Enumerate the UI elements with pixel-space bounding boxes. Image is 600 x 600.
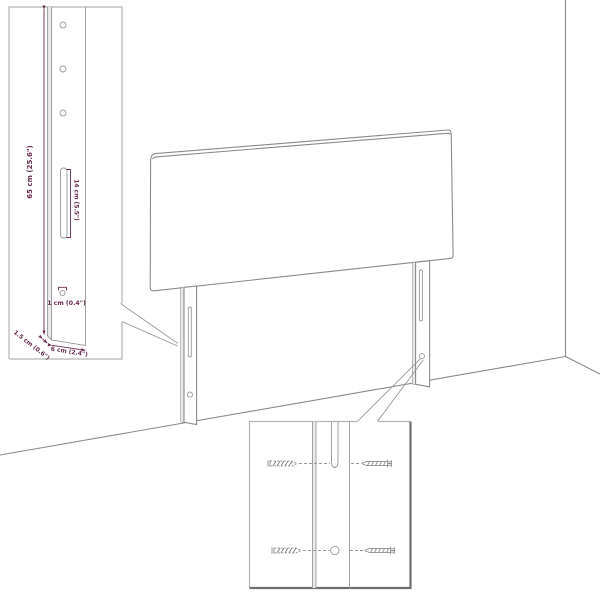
headboard-right-leg: [413, 261, 430, 387]
product-diagram: 65 cm (25.6") 14 cm (5.5") 1 cm (0.4") 1…: [0, 0, 600, 600]
inset-hole-3: [60, 110, 66, 116]
dim-thickness-line: [43, 339, 48, 343]
dim-hole-label: 1 cm (0.4"): [47, 300, 86, 307]
dim-slot-label: 14 cm (5.5"): [73, 179, 80, 221]
callout-leader-left: [121, 304, 179, 347]
headboard-left-leg: [181, 286, 197, 425]
screw-inset: [250, 422, 411, 589]
dim-thickness-label: 1.5 cm (0.6"): [12, 329, 51, 362]
floor-line-right: [566, 357, 600, 375]
diagram-canvas: 65 cm (25.6") 14 cm (5.5") 1 cm (0.4") 1…: [0, 0, 600, 600]
inset-mount-slot: [61, 168, 68, 238]
inset-hole-2: [60, 66, 66, 72]
inset-hole-bottom: [60, 290, 65, 295]
dim-height-label: 65 cm (25.6"): [26, 145, 34, 198]
inset-leg: [48, 7, 86, 346]
dim-width-label: 6 cm (2.4"): [50, 346, 88, 359]
dimension-inset: 65 cm (25.6") 14 cm (5.5") 1 cm (0.4") 1…: [9, 7, 122, 362]
inset-hole-1: [60, 22, 66, 28]
